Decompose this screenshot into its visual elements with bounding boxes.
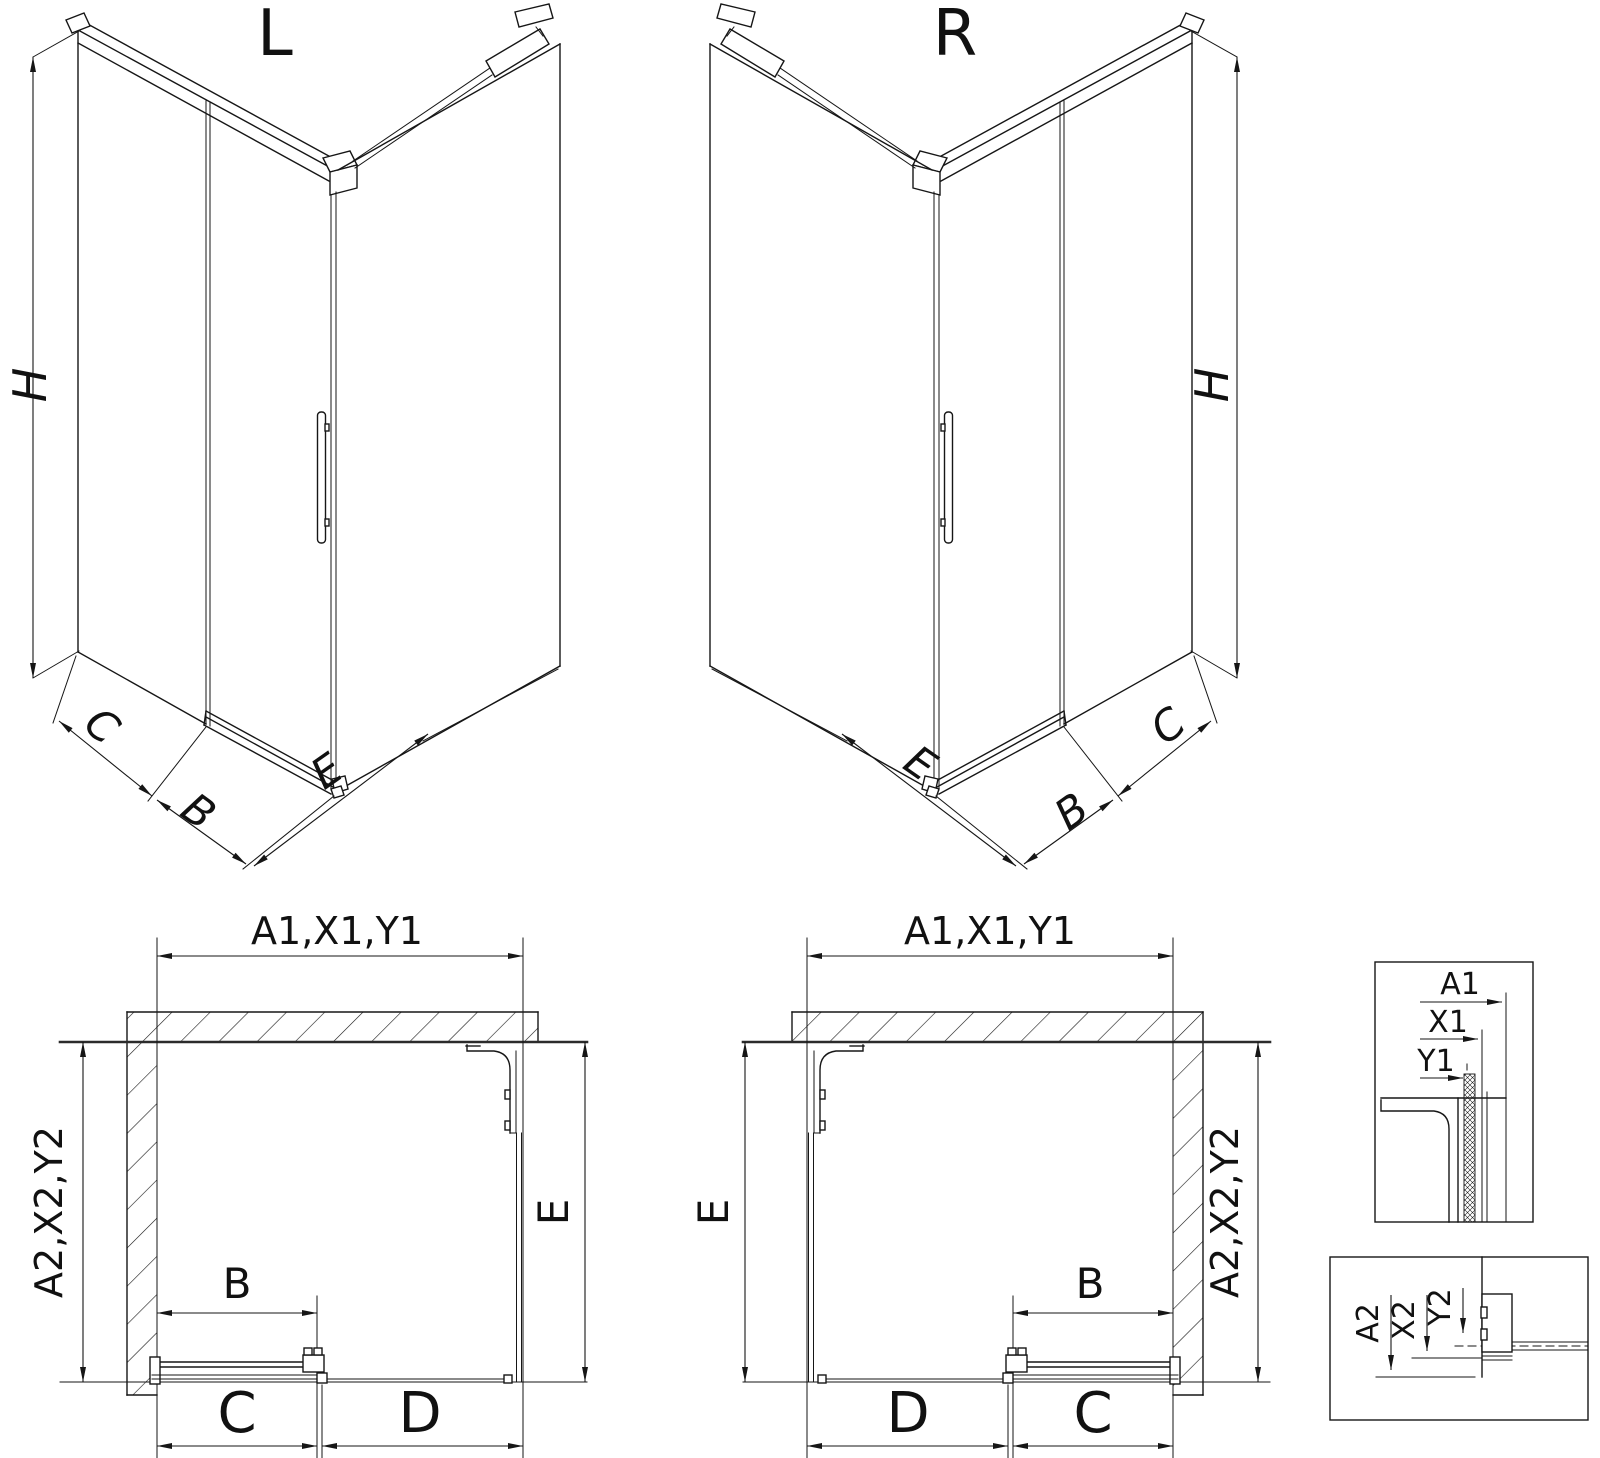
side-glass-left-plan xyxy=(517,1133,522,1382)
wall-profile-cap-right xyxy=(1180,13,1204,33)
dim-A2-right-plan: A2,X2,Y2 xyxy=(1203,1042,1258,1382)
dim-H-left: H xyxy=(3,31,79,678)
support-arm-left xyxy=(353,4,553,168)
door-rail-left-plan xyxy=(150,1348,512,1384)
dim-B-right-plan: B xyxy=(1013,1259,1173,1313)
return-panel-left xyxy=(337,44,560,791)
dim-D-right-plan: D xyxy=(807,1381,1008,1446)
detail-view-bottom: A2 X2 Y2 xyxy=(1330,1257,1588,1420)
dim-label-X2: X2 xyxy=(1387,1300,1422,1340)
dim-A1-right-plan: A1,X1,Y1 xyxy=(807,909,1173,956)
wall-right-plan xyxy=(743,1012,1270,1395)
dim-label-C: C xyxy=(1073,1381,1112,1446)
dim-E-right-plan: E xyxy=(689,1042,745,1382)
side-glass-right-plan xyxy=(809,1133,814,1382)
dim-label-C: C xyxy=(217,1381,256,1446)
wall-profile-section-top xyxy=(1381,1074,1506,1222)
iso-view-left: L H xyxy=(3,0,560,869)
wall-left-plan xyxy=(60,1012,587,1395)
dim-label-B: B xyxy=(1045,783,1097,840)
dim-label-X1: X1 xyxy=(1428,1005,1468,1040)
dim-E-left: E xyxy=(254,669,558,866)
dim-label-B: B xyxy=(223,1259,252,1308)
plan-view-left: A1,X1,Y1 A2,X2,Y2 E B xyxy=(27,909,587,1458)
dim-H-right: H xyxy=(1185,31,1239,678)
dim-label-A1X1Y1: A1,X1,Y1 xyxy=(904,909,1076,953)
dim-label-E: E xyxy=(895,735,945,791)
side-panel-right xyxy=(932,13,1204,724)
dim-label-H: H xyxy=(3,368,57,403)
dim-label-A1X1Y1: A1,X1,Y1 xyxy=(251,909,423,953)
dim-label-C: C xyxy=(75,697,129,754)
wall-bracket-tab xyxy=(515,4,553,27)
dim-label-A2X2Y2: A2,X2,Y2 xyxy=(1203,1126,1247,1298)
technical-drawing-sheet: L H xyxy=(0,0,1600,1458)
dim-C-left: C xyxy=(53,656,206,801)
door-handle xyxy=(318,412,326,543)
view-title-left: L xyxy=(257,0,293,71)
wall-profile-section-bottom xyxy=(1481,1257,1588,1377)
dim-C-right-plan: C xyxy=(1013,1381,1173,1446)
wall-bracket-tab xyxy=(717,4,755,27)
dim-A1-left-plan: A1,X1,Y1 xyxy=(157,909,523,956)
dim-D-left-plan: D xyxy=(322,1381,523,1446)
wall-bracket xyxy=(486,29,549,77)
dim-label-A2: A2 xyxy=(1351,1303,1386,1343)
dim-label-Y2: Y2 xyxy=(1423,1288,1458,1326)
dim-E-left-plan: E xyxy=(529,1042,585,1382)
side-panel-left xyxy=(66,13,338,724)
corner-bracket-left-plan xyxy=(466,1045,516,1133)
dim-label-C: C xyxy=(1141,697,1195,754)
dim-label-D: D xyxy=(398,1381,441,1446)
dim-E-right: E xyxy=(712,669,1016,866)
support-arm-right xyxy=(717,4,917,168)
wall-bracket xyxy=(721,29,784,77)
corner-post-right xyxy=(913,151,947,790)
dim-A2-left-plan: A2,X2,Y2 xyxy=(27,1042,83,1382)
return-panel-right xyxy=(710,44,933,791)
dim-B-left-plan: B xyxy=(157,1259,317,1313)
dim-label-B: B xyxy=(1076,1259,1105,1308)
dim-label-D: D xyxy=(886,1381,929,1446)
dim-Y1-detail: Y1 xyxy=(1416,1044,1467,1079)
detail-view-top: A1 X1 Y1 xyxy=(1375,962,1533,1222)
plan-view-right: A1,X1,Y1 A2,X2,Y2 E B xyxy=(689,909,1270,1458)
sliding-door-right xyxy=(941,101,1064,726)
corner-bracket-right-plan xyxy=(814,1045,864,1133)
dim-label-Y1: Y1 xyxy=(1416,1044,1454,1079)
shower-enclosure-drawing: L H xyxy=(0,0,1600,1458)
wall-profile-cap-left xyxy=(66,13,90,33)
view-title-right: R xyxy=(933,0,977,71)
door-rail-right-plan xyxy=(818,1348,1180,1384)
dim-label-A1: A1 xyxy=(1440,967,1480,1002)
sliding-door-left xyxy=(206,101,329,726)
door-handle xyxy=(945,412,953,543)
iso-view-right: R H xyxy=(710,0,1239,869)
dim-C-left-plan: C xyxy=(157,1381,317,1446)
dim-label-E: E xyxy=(689,1199,738,1226)
dim-C-right: C xyxy=(1064,656,1217,801)
dim-label-E: E xyxy=(529,1199,578,1226)
dim-label-B: B xyxy=(172,783,224,840)
bottom-rail-right xyxy=(922,711,1066,798)
dim-label-H: H xyxy=(1185,368,1239,403)
dim-label-A2X2Y2: A2,X2,Y2 xyxy=(27,1126,71,1298)
corner-post-left xyxy=(323,151,357,790)
